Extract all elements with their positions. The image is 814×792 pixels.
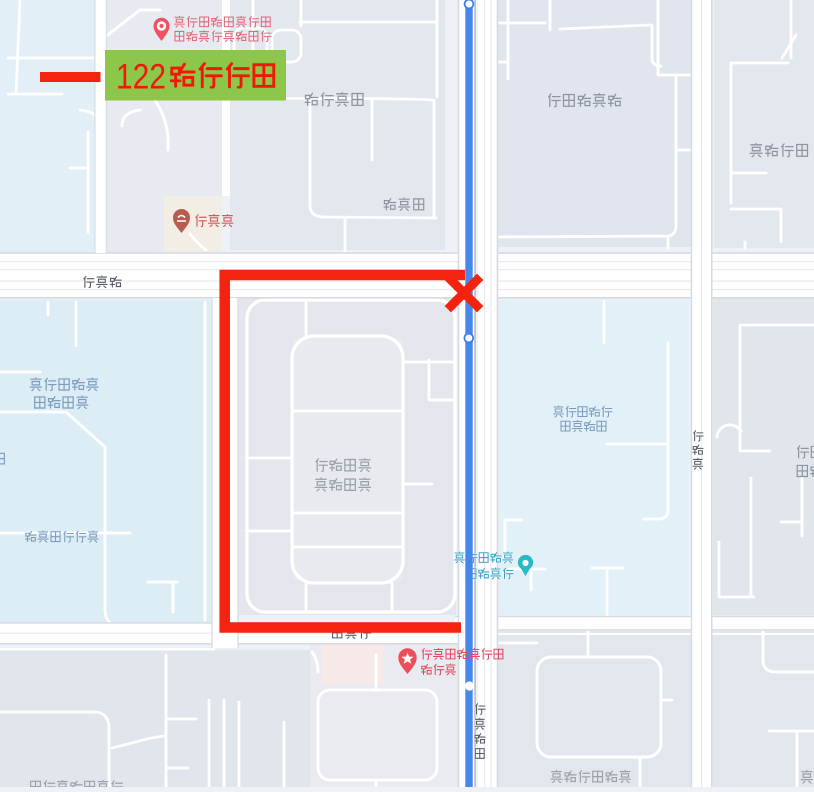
svg-text:122: 122 xyxy=(116,58,166,97)
